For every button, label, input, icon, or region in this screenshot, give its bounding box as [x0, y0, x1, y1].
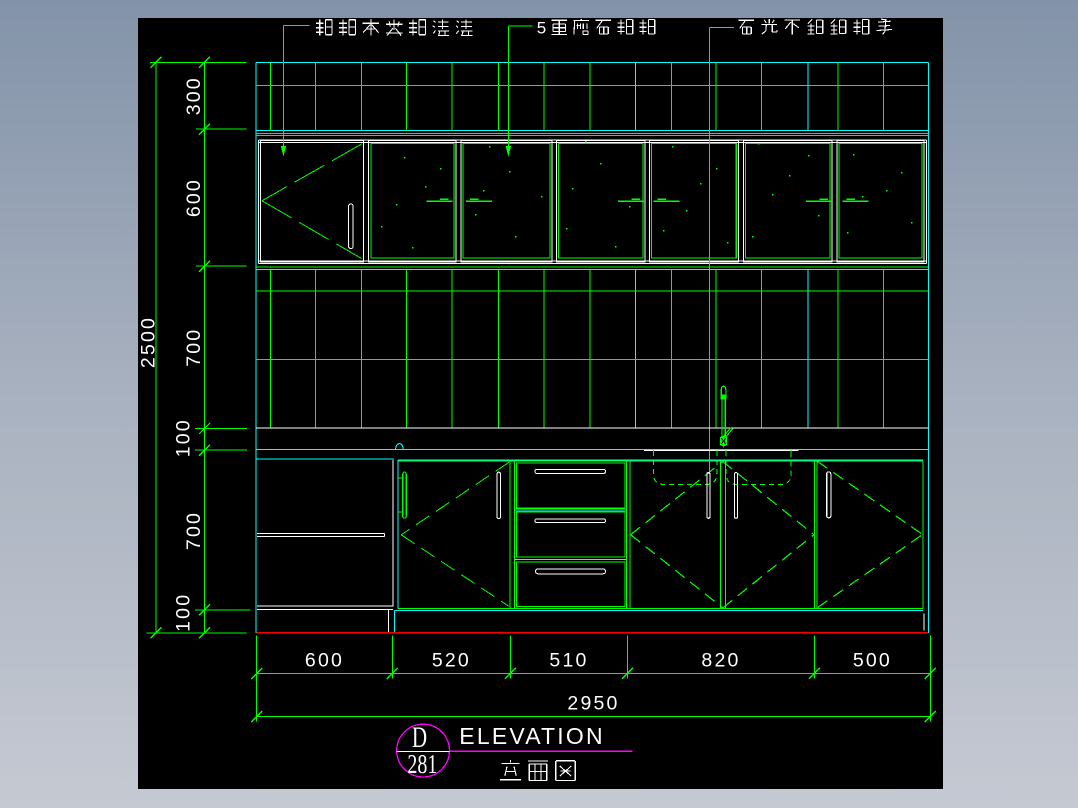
svg-text:2500: 2500 — [138, 316, 160, 368]
svg-text:700: 700 — [183, 511, 205, 550]
svg-text:100: 100 — [173, 593, 195, 632]
svg-text:281: 281 — [407, 750, 437, 780]
svg-text:520: 520 — [432, 650, 471, 672]
svg-text:510: 510 — [549, 650, 588, 672]
svg-text:500: 500 — [853, 650, 892, 672]
svg-text:5: 5 — [537, 19, 546, 38]
svg-text:300: 300 — [183, 76, 205, 115]
svg-text:600: 600 — [305, 650, 344, 672]
svg-text:100: 100 — [173, 418, 195, 457]
svg-text:ELEVATION: ELEVATION — [459, 723, 604, 749]
svg-text:2950: 2950 — [567, 693, 619, 715]
svg-text:820: 820 — [701, 650, 740, 672]
svg-text:D: D — [412, 721, 427, 754]
svg-text:700: 700 — [183, 328, 205, 367]
svg-text:600: 600 — [183, 178, 205, 217]
